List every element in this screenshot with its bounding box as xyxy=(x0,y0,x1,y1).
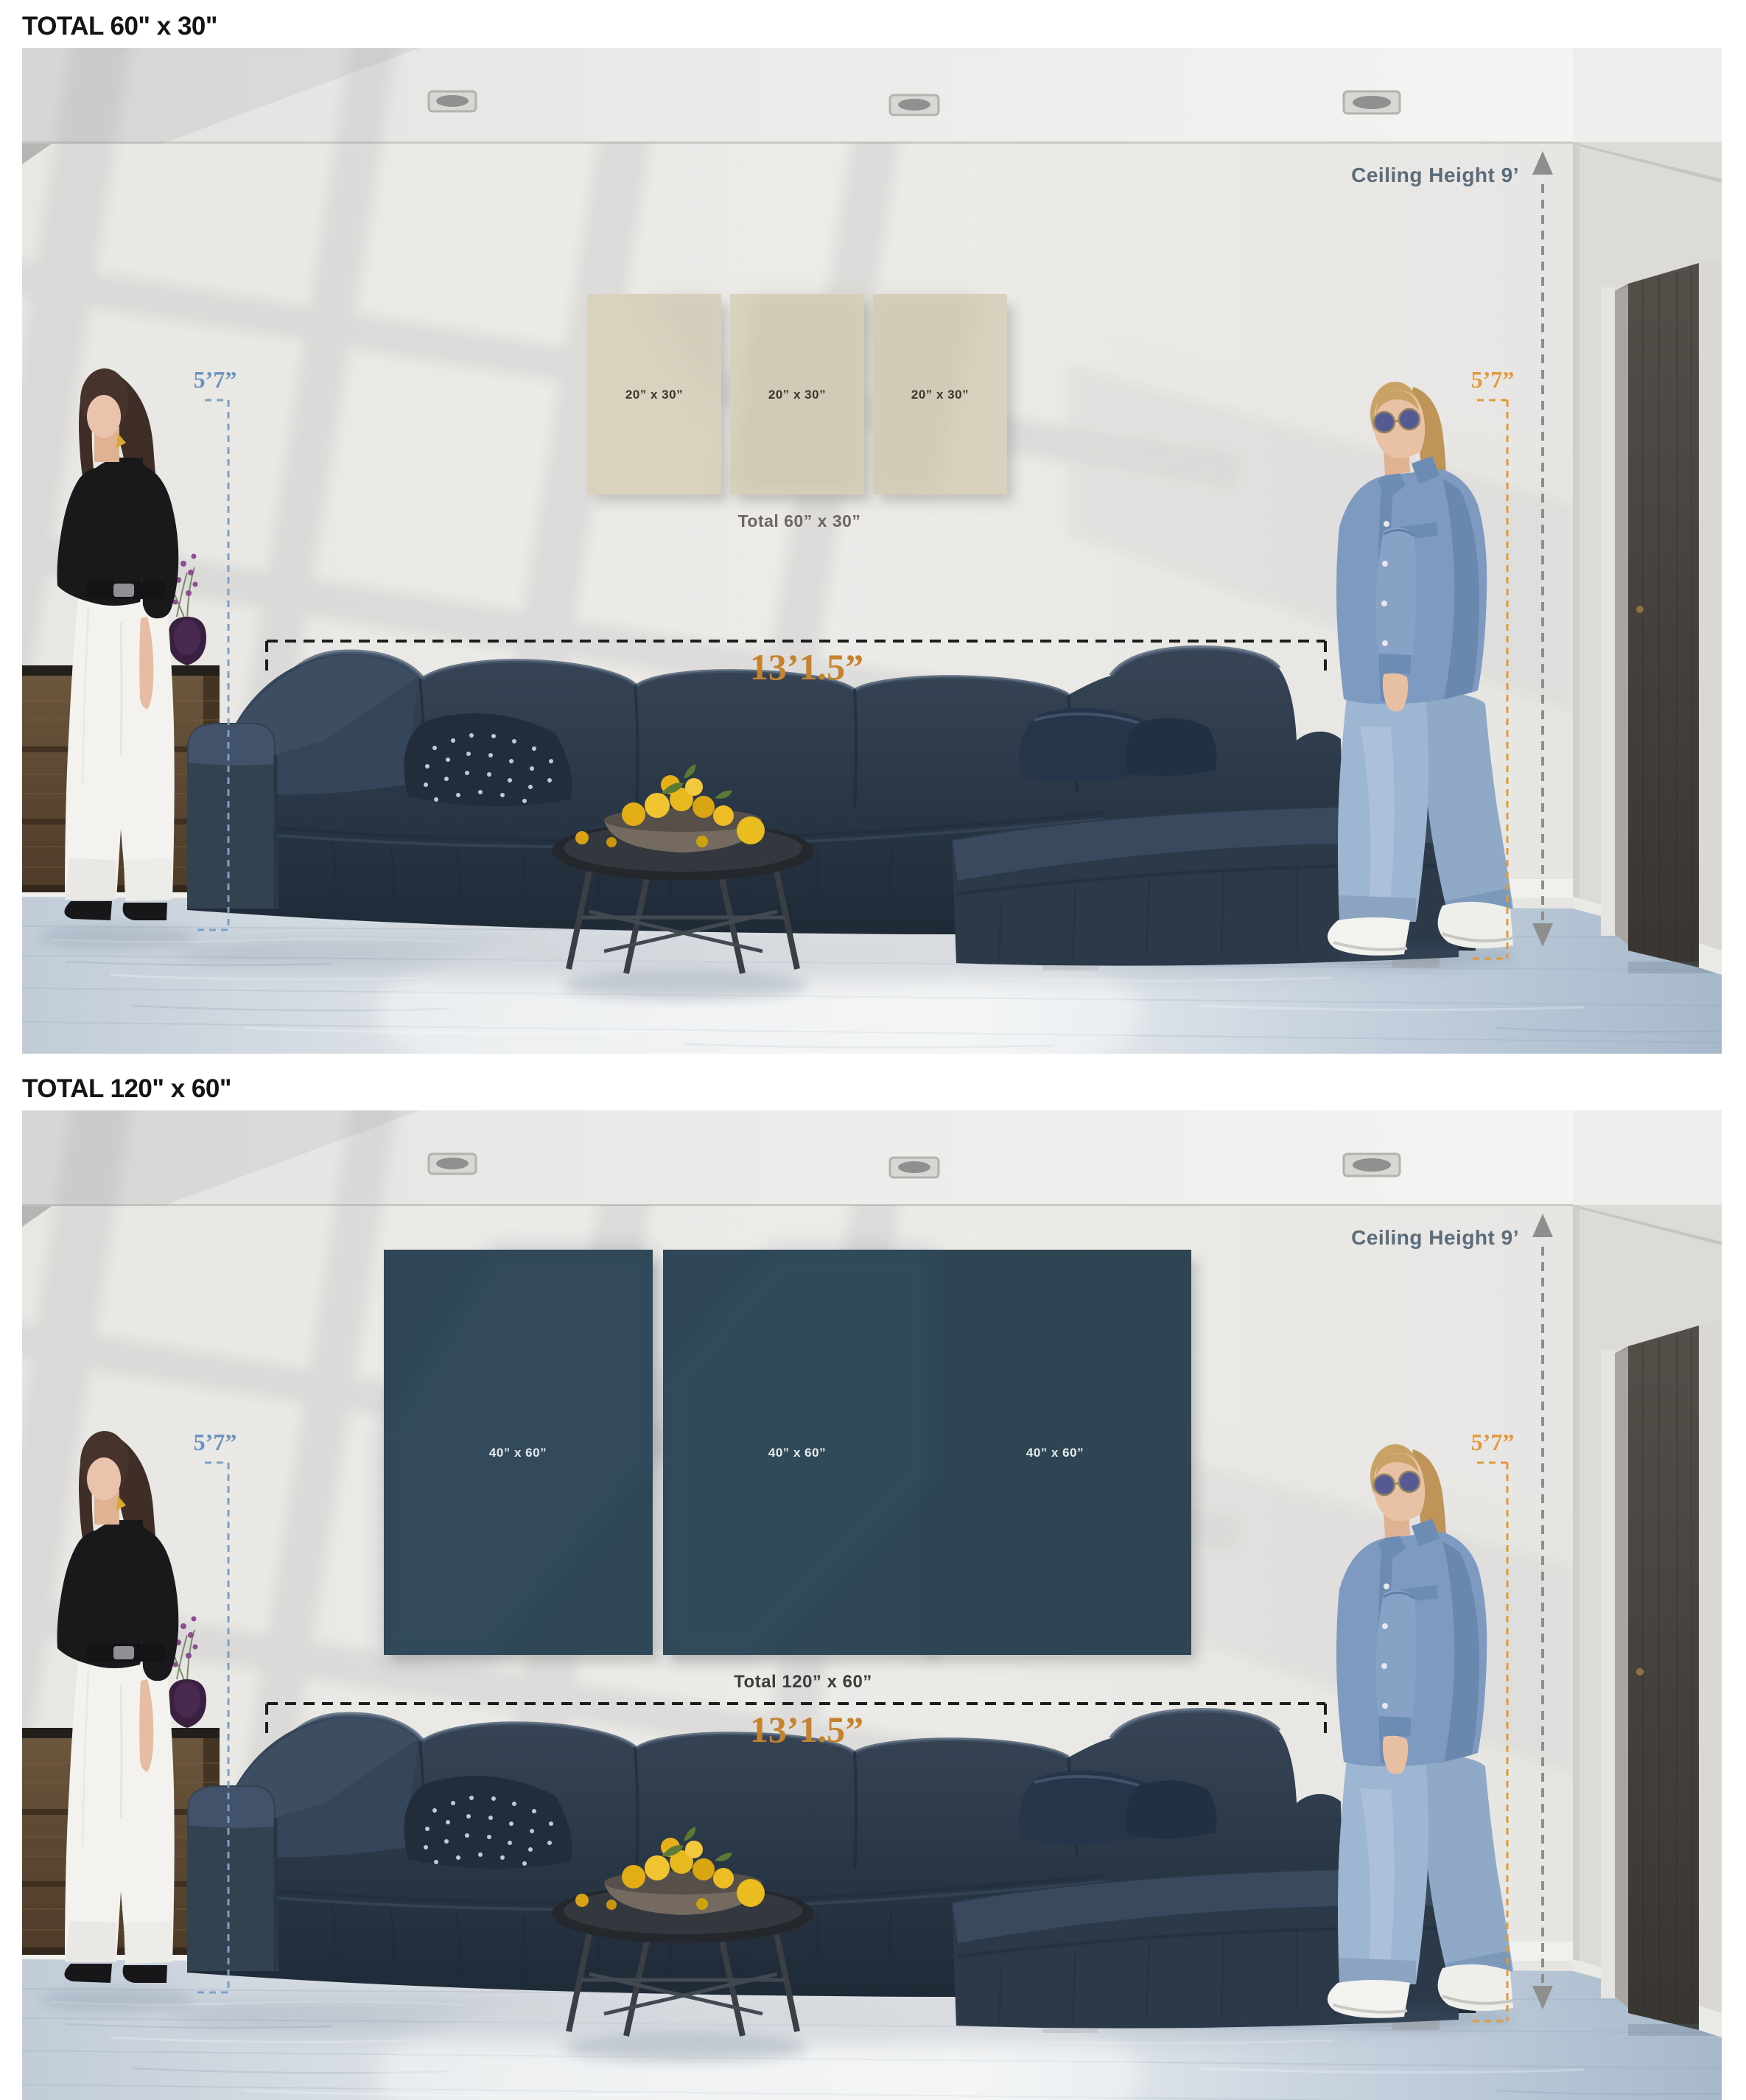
svg-text:40” x 60”: 40” x 60” xyxy=(489,1446,547,1460)
svg-text:20” x 30”: 20” x 30” xyxy=(911,388,969,402)
svg-text:40” x 60”: 40” x 60” xyxy=(1026,1446,1084,1460)
svg-text:20” x 30”: 20” x 30” xyxy=(625,388,683,402)
svg-text:Total 120” x 60”: Total 120” x 60” xyxy=(734,1672,872,1692)
svg-text:40” x 60”: 40” x 60” xyxy=(768,1446,826,1460)
svg-text:20” x 30”: 20” x 30” xyxy=(768,388,826,402)
svg-text:Total 60” x 30”: Total 60” x 30” xyxy=(738,511,861,531)
